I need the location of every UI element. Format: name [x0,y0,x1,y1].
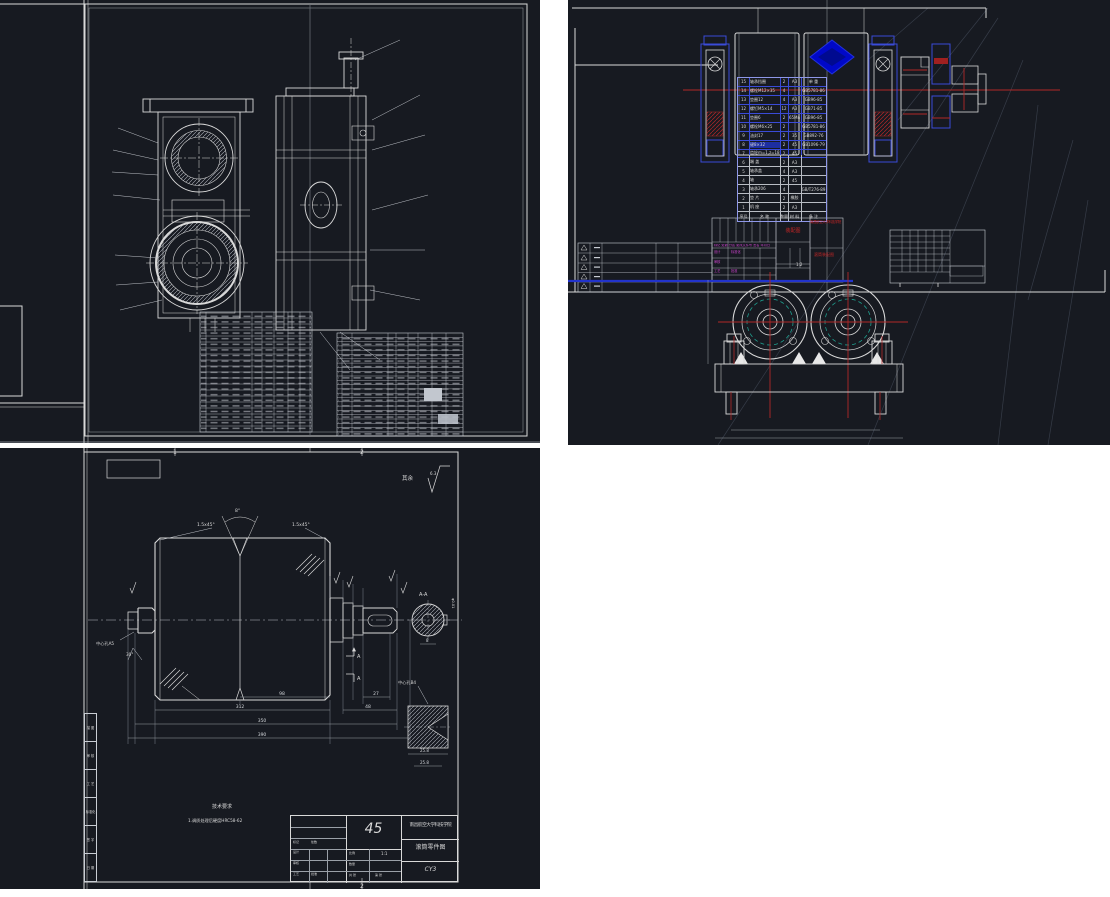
bom-cell-name: 机 座 [749,204,780,210]
bolt-centerlines [731,336,882,420]
side-strip-label: 日 期 [87,865,94,870]
zone-number-bottom-2: 2 [360,883,364,889]
bom-cell-note: GB5781-86 [801,124,826,129]
bom-cell-note: GB71-85 [801,106,826,111]
sig-craft-label: 工艺 [293,873,299,876]
bom-cell-no: 3 [738,187,749,192]
center-hole-detail: 25.8 25.8 [404,706,452,766]
bom-cell-name: 垫 片 [749,195,780,201]
side-strip-label: 审 核 [87,753,94,758]
bom-cell-no: 8 [738,142,749,147]
bom-header-qty: 数量 [780,214,788,220]
sig-check-label: 审核 [293,862,299,865]
bom-cell-qty: 2 [780,133,788,138]
bom-row: 11 垫圈6 2 65Mn GB96-85 [738,114,826,123]
bom-row: 14 螺栓M12×35 4 GB5781-86 [738,87,826,96]
bom-grid-line [788,155,789,221]
bom-header-material: 材 料 [788,214,801,220]
side-strip-cell: 工 艺 [85,770,96,798]
dim-390: 390 [258,732,267,738]
assembly-front-view [708,272,908,438]
mark-label: 标记 [293,841,299,844]
part-drawing-title: 滚筒零件图 [402,845,459,851]
revision-table [578,243,712,292]
dim-98: 98 [279,691,285,697]
technical-notes: 技术要求 1.调质处理后硬度HRC58-62 [188,803,243,824]
bom-cell-qty: 2 [780,178,788,183]
bom-cell-material: 45 [788,142,801,147]
groove-angle-label: 8° [235,508,240,514]
bom-cell-qty: 4 [780,97,788,102]
notes-line1: 1.调质处理后硬度HRC58-62 [188,817,243,824]
bom-row: 8 键8×32 2 45 GB1096-79 [738,141,826,150]
bom-cell-name: 轴承206 [749,186,780,192]
bom-row: 1 机 座 2 A3 [738,203,826,212]
bom-cell-qty: 2 [780,196,788,201]
notes-title: 技术要求 [212,803,232,810]
roller-part-canvas: 1 2 2 其余 6.3 [0,448,540,889]
title-grid-line [401,861,459,862]
title-sig-craft: 工艺 [714,270,720,273]
bom-cell-material: 45 [788,178,801,183]
bom-cell-qty: 4 [780,88,788,93]
bom-grid-line [749,78,750,155]
zone-number-top-1: 1 [173,449,177,456]
bom-cell-name: 端 盖 [749,159,780,165]
bom-cell-material: A3 [788,79,801,84]
bom-cell-qty: 12 [780,106,788,111]
dim-48: 48 [365,704,371,710]
bom-cell-material: 45 [788,151,801,156]
dim-27: 27 [373,691,379,697]
bom-cell-no: 4 [738,178,749,183]
sig-approve-label: 批准 [311,873,317,876]
bom-row: 2 垫 片 2 橡胶 [738,194,826,203]
bom-grid-line [749,155,750,221]
dim-312: 312 [236,704,245,710]
material-value: 45 [346,822,401,836]
title-grid-line [309,849,310,883]
bom-cell-no: 13 [738,97,749,102]
side-strip-label: 工 艺 [87,781,94,786]
title-grid-line [346,849,401,850]
title-sig-approve: 批准 [731,270,737,273]
section-label: A-A [419,592,428,598]
bom-cell-name: 螺栓M6×25 [749,124,780,130]
bom-cell-note: GB96-85 [801,115,826,120]
contact-wedges [734,352,884,364]
title-doc-type: 装配图 [777,229,809,234]
rest-label: 其余 [402,474,414,482]
bom-cell-material: A3 [788,97,801,102]
zone-number-top-2: 2 [360,449,364,456]
bom-cell-no: 2 [738,196,749,201]
title-school-name: 南昌航空大学科技学院 [810,221,841,224]
scale-value: 1:1 [381,852,387,856]
bom-cell-name: 键8×32 [749,142,780,148]
qty-label: 数量 [349,863,355,866]
bom-cell-qty: 2 [780,151,788,156]
center-hole-right-note: 中心孔B4 [398,679,416,686]
bom-cell-no: 12 [738,106,749,111]
assembly-bom-table: 15 轴承挡圈 2 A3 单 重 14 螺栓M12×35 4 GB5781-86… [737,77,827,222]
title-grid-line [291,838,346,839]
panel-roller-part-drawing[interactable]: 1 2 2 其余 6.3 [0,448,540,889]
bom-cell-no: 1 [738,205,749,210]
section-a-a: A-A φ0.01 8 [408,592,455,644]
bom-row: 9 油封17 2 35 GB892-76 [738,132,826,141]
roughness-symbol-icon [428,466,450,492]
bom-row: 12 螺钉M5×14 12 A3 GB71-85 [738,105,826,114]
bom-cell-name: 垫圈6 [749,115,780,121]
side-strip-cell: 审 核 [85,742,96,770]
bom-cell-no: 9 [738,133,749,138]
side-strip-cell: 描 图 [85,714,96,742]
bom-header-note: 备 注 [801,214,826,220]
drawing-number: CY3 [402,867,459,873]
bom-row: 5 轴承盖 4 A3 [738,167,826,176]
bom-cell-no: 7 [738,151,749,156]
rest-roughness-value: 6.3 [430,471,437,476]
side-strip-cell: 签 字 [85,826,96,854]
gearbox-assembly-canvas [0,0,540,443]
bom-row: 3 轴承206 4 GB/T276-89 [738,185,826,194]
bom-cell-qty: 2 [780,160,788,165]
bom-row: 7 齿轮m=1,z=18 2 45 [738,150,826,159]
bom-cell-material: A3 [788,160,801,165]
bom-header-no: 序号 [738,214,749,220]
bom-cell-note: GB/T276-89 [801,187,826,192]
title-sig-standard: 标准化 [731,251,741,254]
bom-grid-line [780,78,781,155]
bom-cell-note: 单 重 [801,79,826,85]
bom-cell-qty: 2 [780,205,788,210]
title-grid-line [291,827,346,828]
parts-table-grid-right [337,333,463,436]
dim-350: 350 [258,718,267,724]
title-sig-design: 设计 [714,251,720,254]
bom-cell-note: GB96-85 [801,97,826,102]
bom-cell-no: 5 [738,169,749,174]
bom-cell-no: 15 [738,79,749,84]
chamfer-left-label: 1.5x45° [197,522,215,528]
title-scale-value: 1:2 [796,263,802,267]
side-strip-cell: 日 期 [85,854,96,881]
base-plate [715,334,903,414]
bom-header-name: 名 称 [749,214,780,220]
sheet-side-strip: 描 图 审 核 工 艺 标准化 签 字 日 期 [84,713,97,882]
bom-cell-name: 螺栓M12×35 [749,88,780,94]
bom-grid-line [780,155,781,221]
bom-cell-no: 14 [738,88,749,93]
bom-cell-qty: 2 [780,124,788,129]
bom-cell-qty: 2 [780,142,788,147]
rest-roughness-note: 其余 6.3 [402,466,450,492]
title-revision-header: 标记 处数 分区 更改文件号 签名 年月日 [714,244,774,247]
bom-row: 15 轴承挡圈 2 A3 单 重 [738,78,826,87]
bom-cell-material: 橡胶 [788,195,801,201]
bom-cell-name: 轴承盖 [749,168,780,174]
bom-row: 4 轴 2 45 [738,176,826,185]
side-strip-label: 描 图 [87,725,94,730]
chamfer-labels: 1.5x45° 1.5x45° 8° [160,508,327,540]
tolerance-note: φ0.01 [451,598,455,608]
bom-cell-note: GB5781-86 [801,88,826,93]
cad-drawing-collage: 15 轴承挡圈 2 A3 单 重 14 螺栓M12×35 4 GB5781-86… [0,0,1110,897]
title-grid-line [291,871,346,872]
bom-grid-line [788,78,789,155]
bom-row: 10 螺栓M6×25 2 GB5781-86 [738,123,826,132]
title-grid-line [327,849,328,883]
bom-cell-material: A3 [788,169,801,174]
chamfer-right-label: 1.5x45° [292,522,310,528]
dim-8: 8 [426,638,429,643]
bom-cell-name: 轴承挡圈 [749,79,780,85]
panel-roller-assembly-drawing[interactable]: 15 轴承挡圈 2 A3 单 重 14 螺栓M12×35 4 GB5781-86… [568,0,1110,445]
bom-cell-qty: 4 [780,169,788,174]
title-grid-line [401,839,459,840]
bom-cell-material: A3 [788,205,801,210]
bom-cell-material: 35 [788,133,801,138]
side-strip-cell: 标准化 [85,798,96,826]
dimension-values: 98 27 312 48 350 390 [236,691,379,738]
bom-grid-line [801,155,802,221]
bom-row: 6 端 盖 2 A3 [738,158,826,167]
dimensions [128,697,410,738]
dim-258b: 25.8 [420,760,429,765]
title-drawing-name: 滚筒装配图 [814,253,834,257]
dim-258a: 25.8 [420,748,429,753]
bom-cell-no: 11 [738,115,749,120]
side-strip-label: 签 字 [87,837,94,842]
side-strip-label: 标准化 [86,809,96,814]
title-sig-check: 审核 [714,261,720,264]
bom-cell-name: 螺钉M5×14 [749,106,780,112]
bom-cell-name: 油封17 [749,133,780,139]
bom-cell-name: 垫圈12 [749,97,780,103]
bom-cell-note: GB892-76 [801,133,826,138]
sig-design-label: 设计 [293,851,299,854]
bom-cell-name: 齿轮m=1,z=18 [749,150,780,156]
title-grid-line [291,860,346,861]
bom-cell-no: 6 [738,160,749,165]
sheet-label-2: 第 张 [375,874,382,877]
section-arrow-a1: A [357,654,361,660]
section-arrows: A A [346,648,361,682]
blank-table-grid [890,230,985,287]
panel-gearbox-assembly-drawing[interactable] [0,0,540,443]
bom-rows: 15 轴承挡圈 2 A3 单 重 14 螺栓M12×35 4 GB5781-86… [738,78,826,212]
school-name: 南昌航空大学科技学院 [402,824,459,829]
front-view [112,99,253,332]
bom-cell-qty: 2 [780,115,788,120]
bom-cell-material: 65Mn [788,115,801,120]
bom-cell-qty: 4 [780,187,788,192]
count-label: 处数 [311,841,317,844]
section-arrow-a2: A [357,676,361,682]
title-grid-line [346,860,401,861]
sheet-label: 共 张 [349,874,356,877]
bom-cell-name: 轴 [749,177,780,183]
title-grid-line [369,849,370,883]
title-grid-line [346,871,401,872]
bom-grid-line [801,78,802,155]
bom-row: 13 垫圈12 4 A3 GB96-85 [738,96,826,105]
scale-label: 比例 [349,852,355,855]
bom-cell-note: GB1096-79 [801,142,826,147]
center-hole-left-note: 中心孔A5 [96,640,114,647]
bom-cell-no: 10 [738,124,749,129]
bom-table-grid-left [200,312,312,432]
part-title-block: 设计 审核 工艺 批准 标记 处数 45 比例 1:1 数量 共 张 第 张 南… [290,815,458,882]
title-grid-line [291,849,346,850]
bom-cell-qty: 2 [780,79,788,84]
bom-cell-material: A3 [788,106,801,111]
